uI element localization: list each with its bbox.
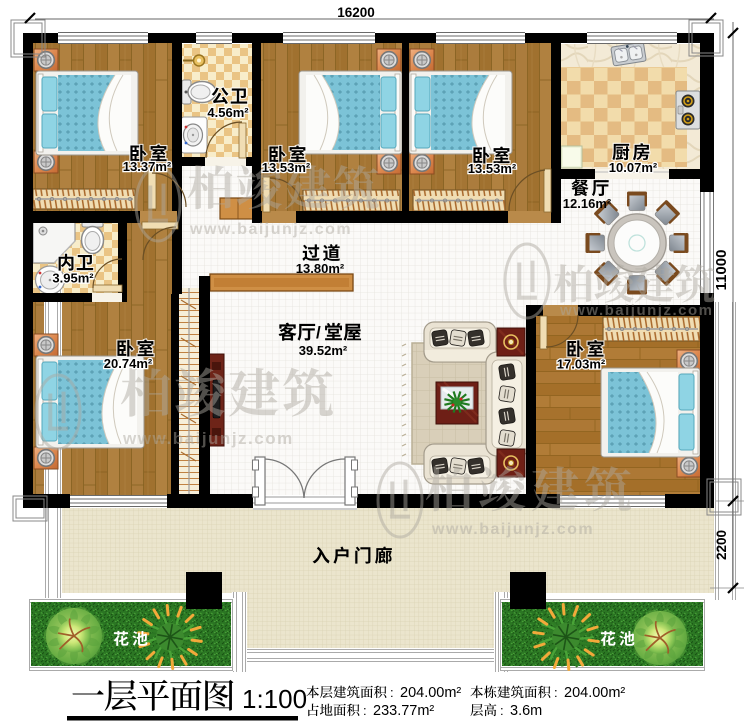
svg-text:204.00m²: 204.00m² (564, 685, 625, 701)
svg-text:www.baijunjz.com: www.baijunjz.com (122, 429, 294, 448)
svg-text:204.00m²: 204.00m² (400, 685, 461, 701)
svg-text:13.53m²: 13.53m² (262, 160, 311, 175)
svg-text:16200: 16200 (337, 5, 375, 20)
svg-text:4.56m²: 4.56m² (207, 105, 249, 120)
svg-text:39.52m²: 39.52m² (299, 343, 348, 358)
svg-text:11000: 11000 (713, 250, 730, 291)
svg-text:12.16m²: 12.16m² (563, 196, 612, 211)
svg-text:www.baijunjz.com: www.baijunjz.com (189, 221, 352, 238)
svg-text::: : (554, 685, 558, 700)
svg-text:3.95m²: 3.95m² (52, 271, 94, 286)
svg-text:/: / (316, 323, 321, 342)
svg-text:13.80m²: 13.80m² (296, 261, 345, 276)
svg-text:13.53m²: 13.53m² (468, 161, 517, 176)
svg-text:3.6m: 3.6m (510, 703, 542, 719)
svg-text:20.74m²: 20.74m² (104, 356, 153, 371)
svg-text::: : (390, 685, 394, 700)
svg-text::: : (363, 703, 367, 718)
svg-text:www.baijunjz.com: www.baijunjz.com (431, 521, 594, 538)
svg-text:www.baijunjz.com: www.baijunjz.com (559, 302, 713, 319)
svg-text::: : (500, 703, 504, 718)
svg-text:13.37m²: 13.37m² (123, 159, 172, 174)
svg-text:10.07m²: 10.07m² (609, 160, 658, 175)
svg-text:1:100: 1:100 (242, 684, 307, 714)
svg-text:17.03m²: 17.03m² (557, 357, 606, 372)
svg-text:233.77m²: 233.77m² (373, 703, 434, 719)
svg-text:2200: 2200 (714, 530, 729, 560)
